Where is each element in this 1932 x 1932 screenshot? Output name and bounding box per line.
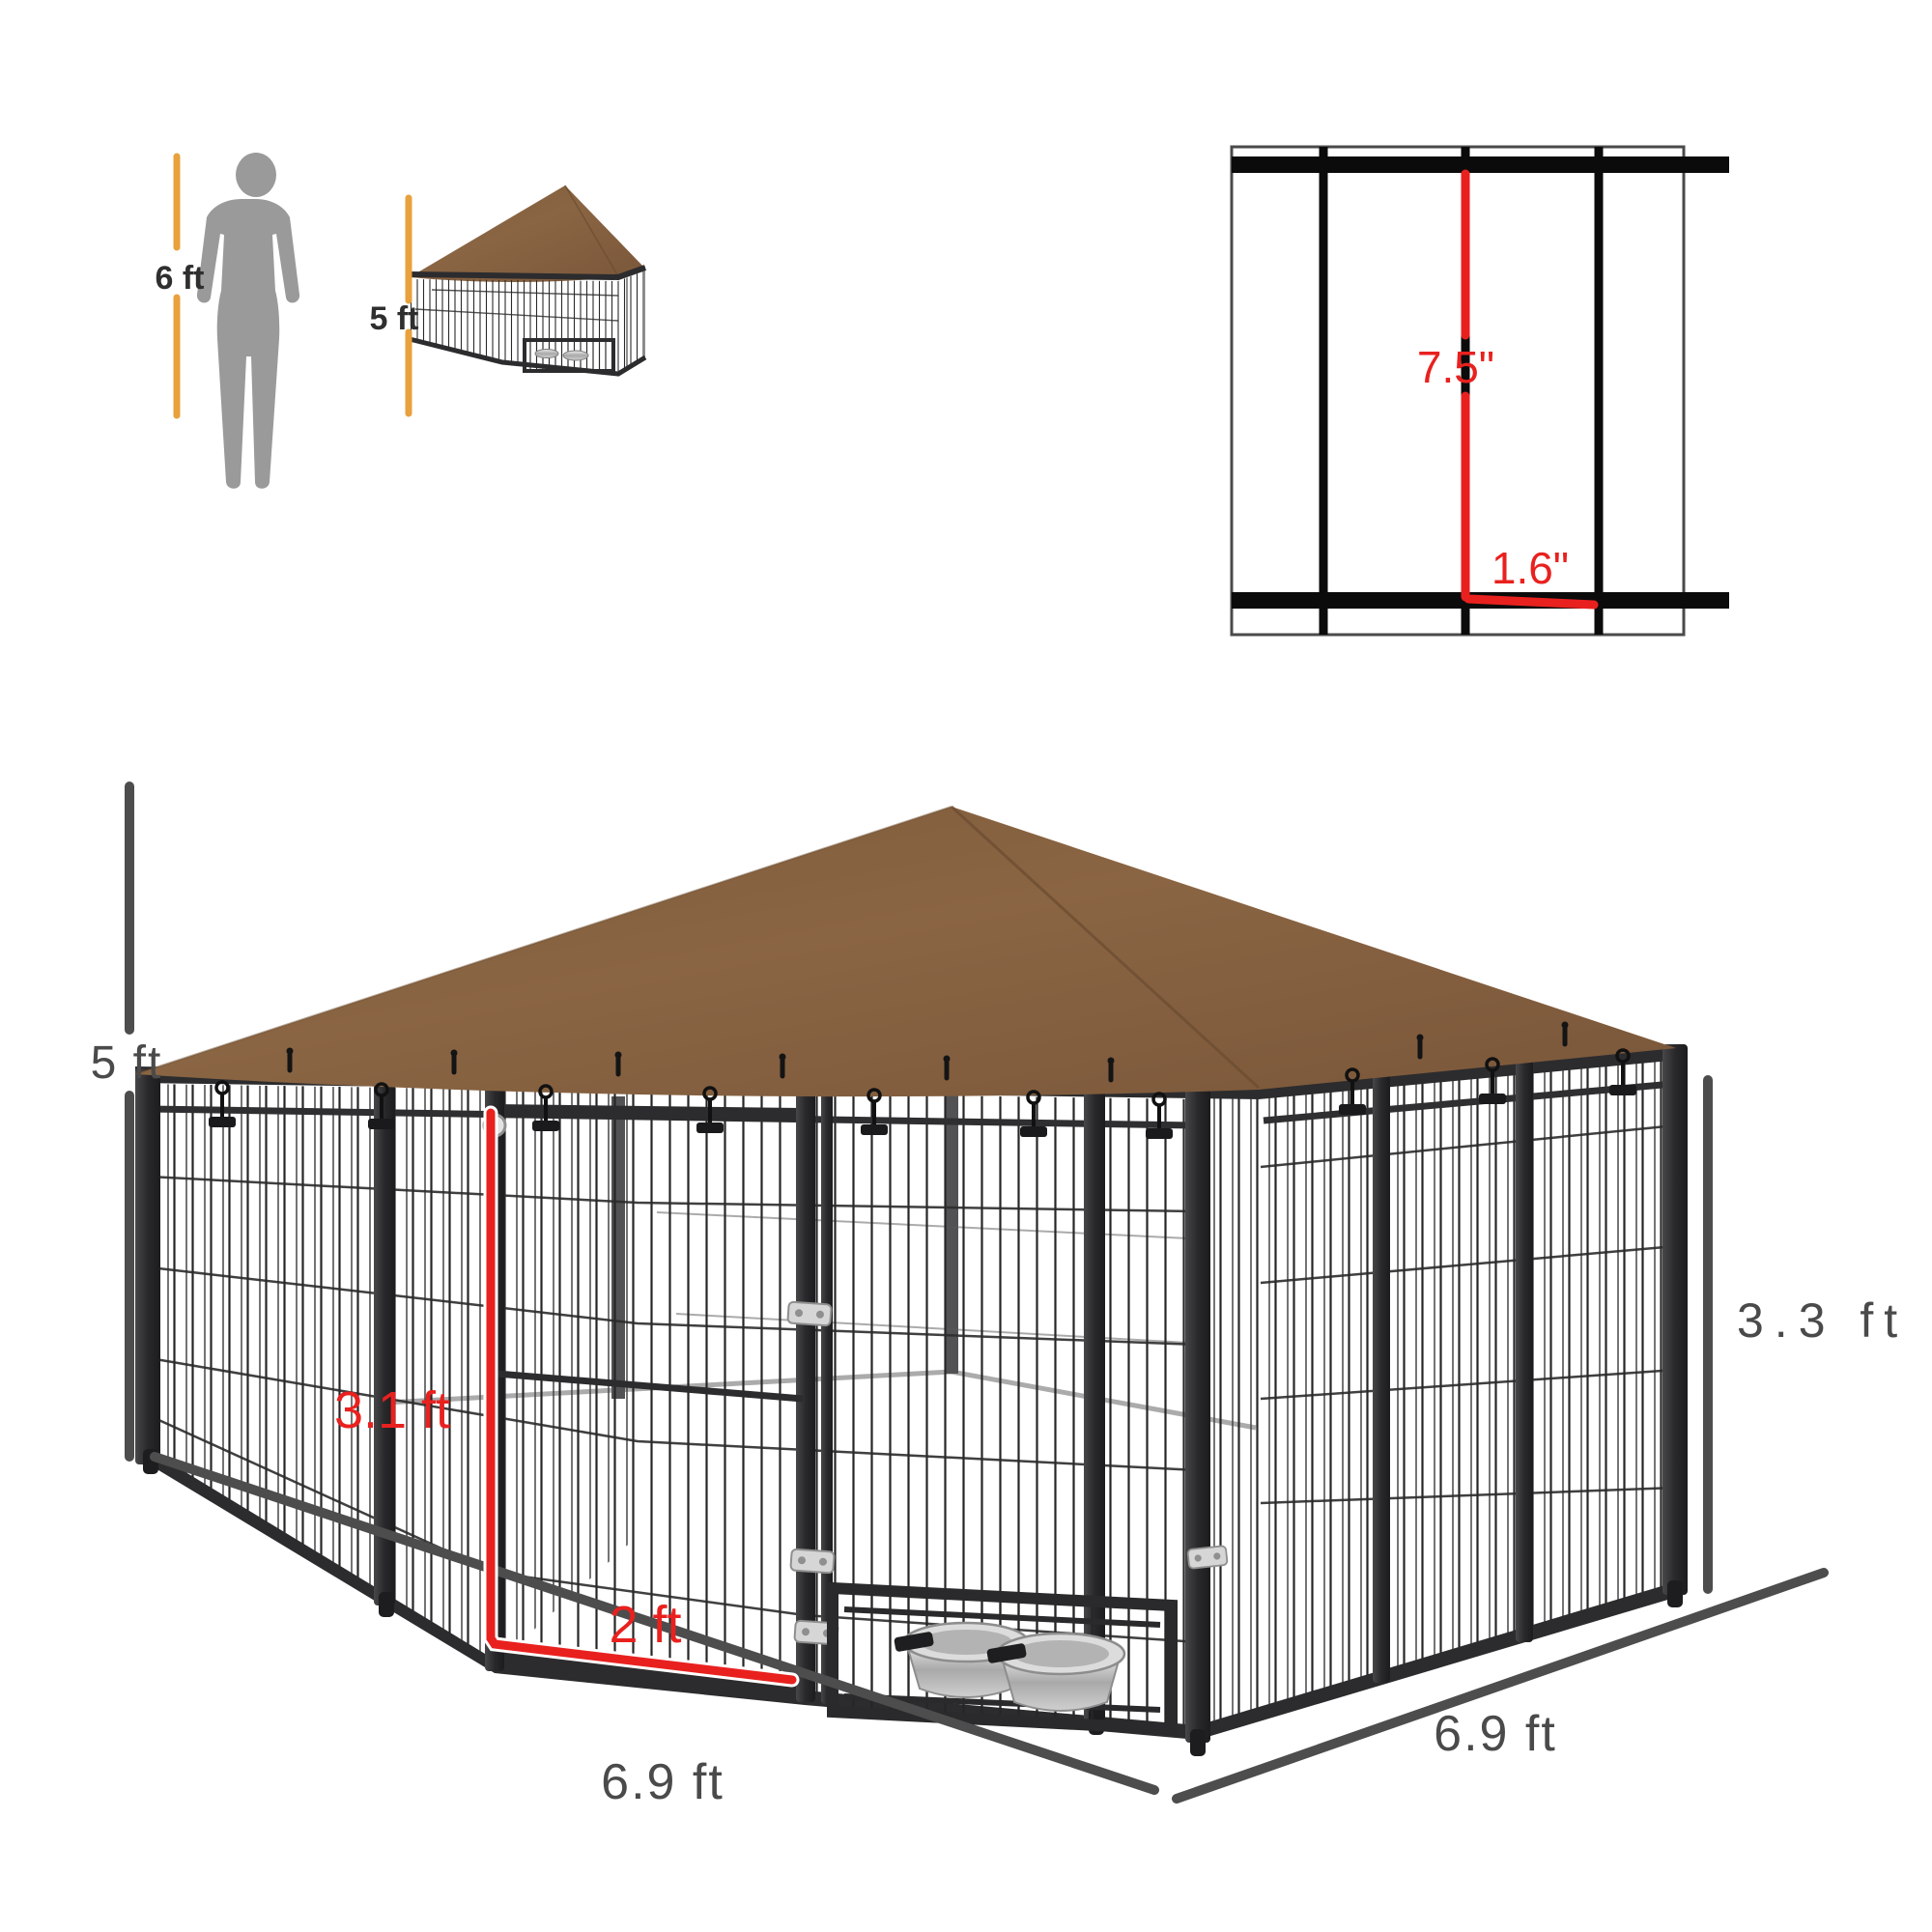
person-silhouette [197,153,299,489]
panel-height-dimension: 3.3 ft [1708,1080,1908,1589]
person-height-label: 6 ft [156,260,205,297]
kennel-dimension-diagram: 6 ft 5 ft [0,0,1932,1932]
overall-height-label: 5 ft [91,1037,163,1089]
canopy [135,807,1676,1096]
side-depth-label: 6.9 ft [1434,1706,1557,1762]
thumbnail-canopy [410,185,645,282]
thumbnail-height-label: 5 ft [370,300,419,337]
scale-comparison: 6 ft 5 ft [156,153,646,489]
thumbnail-height-dimension: 5 ft [370,198,419,413]
door-width-label: 2 ft [609,1596,681,1654]
wire-spacing-diagram: 7.5" 1.6" [1232,147,1729,635]
panel-height-label: 3.3 ft [1737,1293,1908,1348]
kennel-illustration [135,807,1688,1756]
product-thumbnail [410,185,645,377]
kennel-dimension-page: 6 ft 5 ft [0,0,1932,1932]
feeder-door [833,1588,1172,1729]
door-hinge [790,1548,834,1573]
person-height-dimension: 6 ft [156,156,205,415]
door-height-label: 3.1 ft [334,1381,450,1439]
door-hinge [787,1301,831,1325]
wire-detail-top-bar [1232,156,1729,173]
wire-vertical-spacing-label: 7.5" [1417,342,1494,392]
wire-horizontal-spacing-label: 1.6" [1492,543,1569,593]
side-gate-latch [1187,1546,1227,1569]
front-width-label: 6.9 ft [601,1754,724,1810]
